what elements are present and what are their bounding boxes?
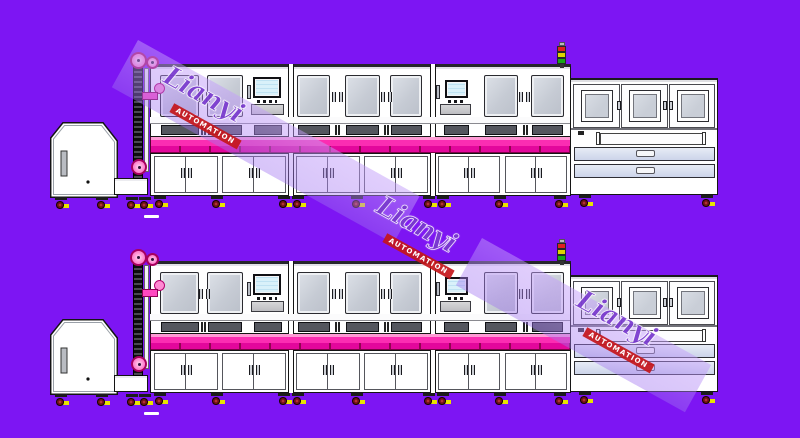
vent-divider — [335, 125, 340, 135]
hopper-knob — [86, 180, 89, 183]
caster — [153, 393, 168, 405]
cabinet-window — [531, 75, 564, 117]
hmi-buttons — [448, 100, 466, 103]
vent-divider — [384, 322, 389, 332]
cabinet-window — [484, 75, 518, 117]
rail-bracket — [702, 329, 706, 342]
lower-cabinet-unit — [222, 353, 286, 390]
vent-divider — [335, 322, 340, 332]
door-handle-pair — [332, 289, 343, 299]
hmi-buttons — [257, 100, 277, 103]
unloading-window — [629, 90, 661, 122]
unloading-window — [581, 90, 613, 122]
hopper-window-slot — [61, 151, 67, 176]
caster — [578, 392, 593, 404]
vent-panel — [444, 125, 469, 135]
hmi-screen — [445, 80, 468, 98]
lower-cabinet-unit — [505, 353, 567, 390]
lower-cabinet-unit — [296, 353, 360, 390]
module-divider-post — [288, 350, 294, 393]
caster — [138, 394, 153, 406]
vent-panel — [346, 125, 379, 135]
elevator-pulley-bottom — [131, 356, 147, 372]
hmi-screen — [253, 274, 281, 295]
slit-window — [247, 282, 251, 296]
caster — [553, 393, 568, 405]
cad-canvas: Lianyi AUTOMATION Lianyi AUTOMATION Lian… — [0, 0, 800, 438]
vent-panel — [298, 322, 330, 332]
hopper-feeder — [50, 319, 118, 395]
latch-mark — [578, 131, 584, 135]
signal-tower — [556, 239, 568, 265]
slit-window — [436, 85, 440, 99]
vent-panel — [346, 322, 379, 332]
rail-bracket — [702, 132, 706, 145]
rail-bracket — [596, 132, 600, 145]
module-divider-post — [430, 64, 436, 137]
hmi-buttons — [448, 297, 466, 300]
caster — [493, 393, 508, 405]
cabinet-window — [297, 272, 330, 314]
door-handle — [663, 101, 667, 110]
door-handle — [669, 101, 673, 110]
unloading-window — [677, 90, 709, 122]
outfeed-table — [114, 178, 148, 195]
window-ledge — [150, 314, 571, 321]
vent-panel — [444, 322, 469, 332]
scale-dash — [144, 412, 159, 415]
vent-panel — [161, 322, 199, 332]
cabinet-window — [207, 272, 243, 314]
module-divider-post — [288, 261, 294, 334]
caster — [277, 393, 292, 405]
door-handle — [669, 298, 673, 307]
lower-cabinet-unit — [505, 156, 567, 193]
vent-divider — [384, 125, 389, 135]
hopper-feeder — [50, 122, 118, 198]
elevator-pulley-top-left — [130, 249, 147, 266]
conveyor-belt-pink — [150, 334, 573, 350]
door-handle-pair — [181, 365, 192, 375]
vent-panel — [485, 125, 517, 135]
cabinet-window — [390, 75, 422, 117]
hmi-screen — [253, 77, 281, 98]
signal-tower — [556, 42, 568, 68]
cabinet-window — [390, 272, 422, 314]
slot-recess — [600, 133, 703, 145]
lower-cabinet-unit — [154, 156, 218, 193]
hmi-keyboard-tray — [440, 301, 471, 312]
elevator-pulley-top-right — [146, 253, 159, 266]
door-handle-pair — [249, 168, 260, 178]
door-handle — [663, 298, 667, 307]
caster — [95, 394, 110, 406]
lower-cabinet-unit — [438, 156, 500, 193]
caster — [422, 393, 437, 405]
hopper-window-slot — [61, 348, 67, 373]
door-handle-pair — [531, 168, 542, 178]
vent-panel — [391, 125, 422, 135]
door-handle-pair — [381, 92, 392, 102]
signal-tower-pole — [560, 261, 564, 265]
elevator-pulley-bottom — [131, 159, 147, 175]
hmi-keyboard-tray — [251, 301, 284, 312]
lower-cabinet-unit — [154, 353, 218, 390]
hmi-buttons — [257, 297, 277, 300]
door-handle-pair — [464, 365, 475, 375]
caster — [700, 392, 715, 404]
elevator-link-bar — [142, 289, 158, 297]
cabinet-window — [345, 272, 380, 314]
caster — [436, 393, 451, 405]
door-handle-pair — [381, 289, 392, 299]
vent-panel — [391, 322, 422, 332]
door-handle-pair — [391, 168, 402, 178]
caster — [350, 393, 365, 405]
vent-panel — [254, 322, 282, 332]
hmi-keyboard-tray — [440, 104, 471, 115]
lower-cabinet-unit — [438, 353, 500, 390]
slit-window — [436, 282, 440, 296]
slit-window — [247, 85, 251, 99]
outfeed-table — [114, 375, 148, 392]
door-handle-pair — [332, 92, 343, 102]
caster — [291, 393, 306, 405]
cabinet-window — [297, 75, 330, 117]
vent-divider — [523, 125, 528, 135]
door-handle-pair — [323, 365, 334, 375]
door-handle-pair — [249, 365, 260, 375]
module-divider-post — [430, 350, 436, 393]
lower-cabinet-unit — [364, 353, 428, 390]
door-handle-pair — [531, 365, 542, 375]
vent-divider — [201, 322, 206, 332]
vent-panel — [208, 322, 242, 332]
mid-frame-rail — [571, 128, 717, 130]
drawer-handle — [636, 150, 655, 157]
caster — [54, 394, 69, 406]
door-handle-pair — [199, 289, 210, 299]
door-handle-pair — [519, 92, 530, 102]
vent-panel — [532, 125, 563, 135]
unloading-window — [677, 287, 709, 319]
cabinet-window — [345, 75, 380, 117]
drawer-handle — [636, 167, 655, 174]
cabinet-window — [160, 272, 199, 314]
door-handle-pair — [464, 168, 475, 178]
vent-panel — [485, 322, 517, 332]
door-handle — [617, 101, 621, 110]
hopper-knob — [86, 377, 89, 380]
door-handle-pair — [181, 168, 192, 178]
door-handle-pair — [391, 365, 402, 375]
signal-tower-pole — [560, 64, 564, 68]
module-divider-post — [430, 153, 436, 196]
elevator-guide-rail — [144, 265, 149, 369]
caster — [210, 393, 225, 405]
